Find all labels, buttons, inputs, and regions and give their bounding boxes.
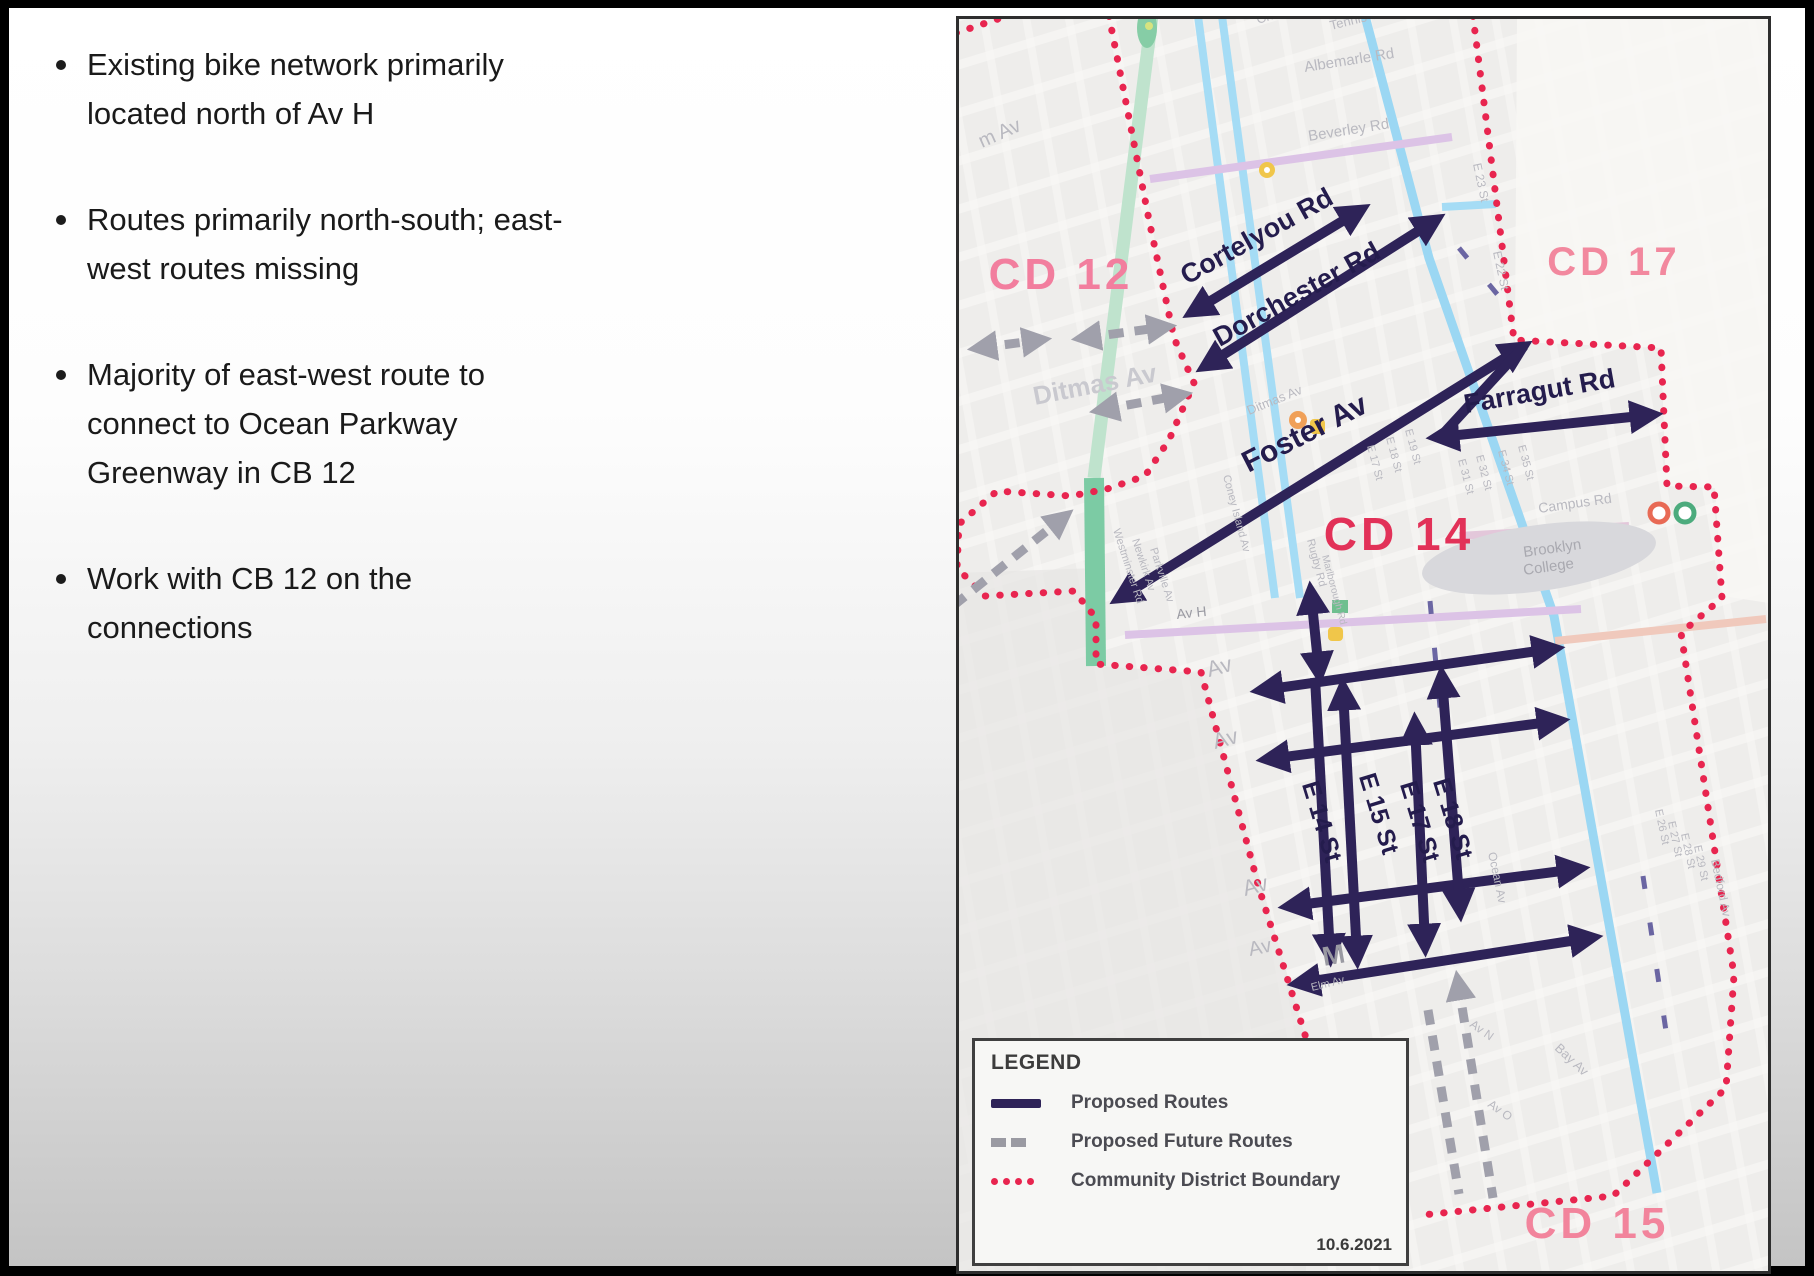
subway-bullet-icon bbox=[1676, 504, 1694, 522]
bullet-item: Majority of east-west route to connect t… bbox=[56, 350, 947, 497]
street-label: Av H bbox=[1176, 603, 1208, 622]
bullet-icon bbox=[56, 574, 66, 584]
legend-item-label: Proposed Routes bbox=[1071, 1092, 1228, 1114]
bullet-text: Routes primarily north-south; east- west… bbox=[87, 195, 727, 293]
bullet-text: Existing bike network primarily located … bbox=[87, 40, 727, 138]
bullet-text: Work with CB 12 on the connections bbox=[87, 554, 727, 652]
bullet-icon bbox=[56, 60, 66, 70]
subway-station-icon bbox=[1328, 627, 1343, 641]
legend-item: Proposed Future Routes bbox=[991, 1131, 1390, 1153]
district-label-cd12: CD 12 bbox=[989, 250, 1134, 299]
district-boundary-swatch-icon bbox=[991, 1178, 1049, 1185]
slide-frame: Existing bike network primarily located … bbox=[0, 0, 1814, 1276]
legend-title: LEGEND bbox=[991, 1051, 1390, 1075]
district-label-cd15: CD 15 bbox=[1525, 1199, 1670, 1248]
slide-bullets: Existing bike network primarily located … bbox=[9, 8, 947, 709]
slide-background: Existing bike network primarily located … bbox=[9, 8, 1805, 1266]
map-legend: LEGEND Proposed Routes Proposed Future R… bbox=[972, 1038, 1409, 1266]
legend-date: 10.6.2021 bbox=[1316, 1235, 1392, 1255]
legend-item-label: Proposed Future Routes bbox=[1071, 1131, 1293, 1153]
legend-item: Proposed Routes bbox=[991, 1092, 1390, 1114]
bullet-item: Work with CB 12 on the connections bbox=[56, 554, 947, 652]
subway-bullet-icon bbox=[1650, 504, 1668, 522]
district-label-cd17: CD 17 bbox=[1547, 240, 1680, 284]
bullet-icon bbox=[56, 215, 66, 225]
bullet-text: Majority of east-west route to connect t… bbox=[87, 350, 727, 497]
bullet-icon bbox=[56, 370, 66, 380]
future-routes-swatch-icon bbox=[991, 1138, 1049, 1147]
street-label: Av bbox=[1246, 935, 1273, 961]
district-label-cd14: CD 14 bbox=[1324, 508, 1474, 560]
legend-item: Community District Boundary bbox=[991, 1170, 1390, 1192]
bullet-item: Routes primarily north-south; east- west… bbox=[56, 195, 947, 293]
bullet-item: Existing bike network primarily located … bbox=[56, 40, 947, 138]
legend-item-label: Community District Boundary bbox=[1071, 1170, 1340, 1192]
proposed-routes-swatch-icon bbox=[991, 1099, 1049, 1108]
